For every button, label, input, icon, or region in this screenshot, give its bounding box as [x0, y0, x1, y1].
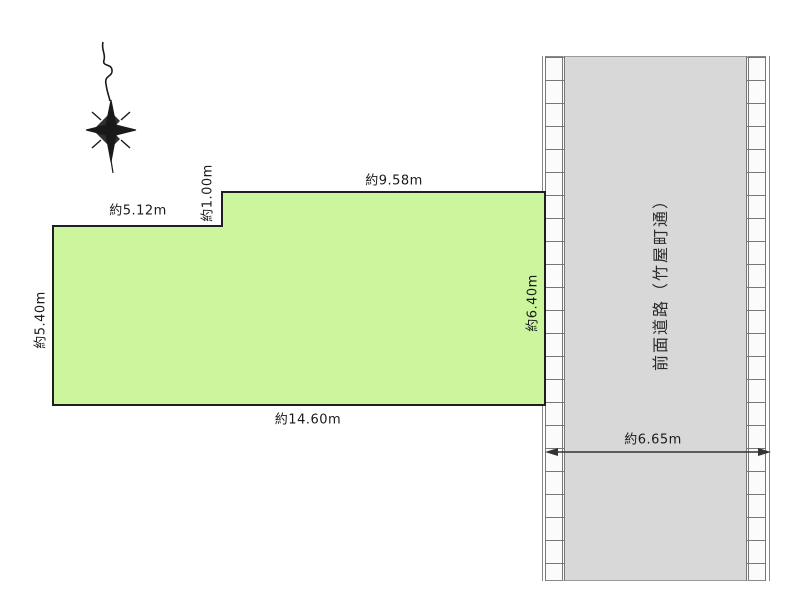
dim-bottom-width: 約14.60m — [275, 414, 341, 427]
land-plot-shape — [53, 192, 545, 405]
site-plan-diagram: 約5.12m 約1.00m 約9.58m 約5.40m 約6.40m 約14.6… — [0, 0, 787, 595]
dim-top-left-width: 約5.12m — [109, 205, 167, 218]
dim-road-width: 約6.65m — [624, 434, 682, 447]
dim-left-depth: 約5.40m — [35, 291, 48, 349]
north-compass-star-icon — [86, 42, 136, 173]
dim-right-depth: 約6.40m — [527, 274, 540, 332]
compass-north-flourish — [103, 42, 113, 101]
dim-top-right-width: 約9.58m — [365, 175, 423, 188]
dim-step-depth: 約1.00m — [202, 164, 215, 222]
road-name-label: 前面道路（竹屋町通） — [653, 191, 669, 371]
road-width-arrow — [545, 448, 771, 456]
